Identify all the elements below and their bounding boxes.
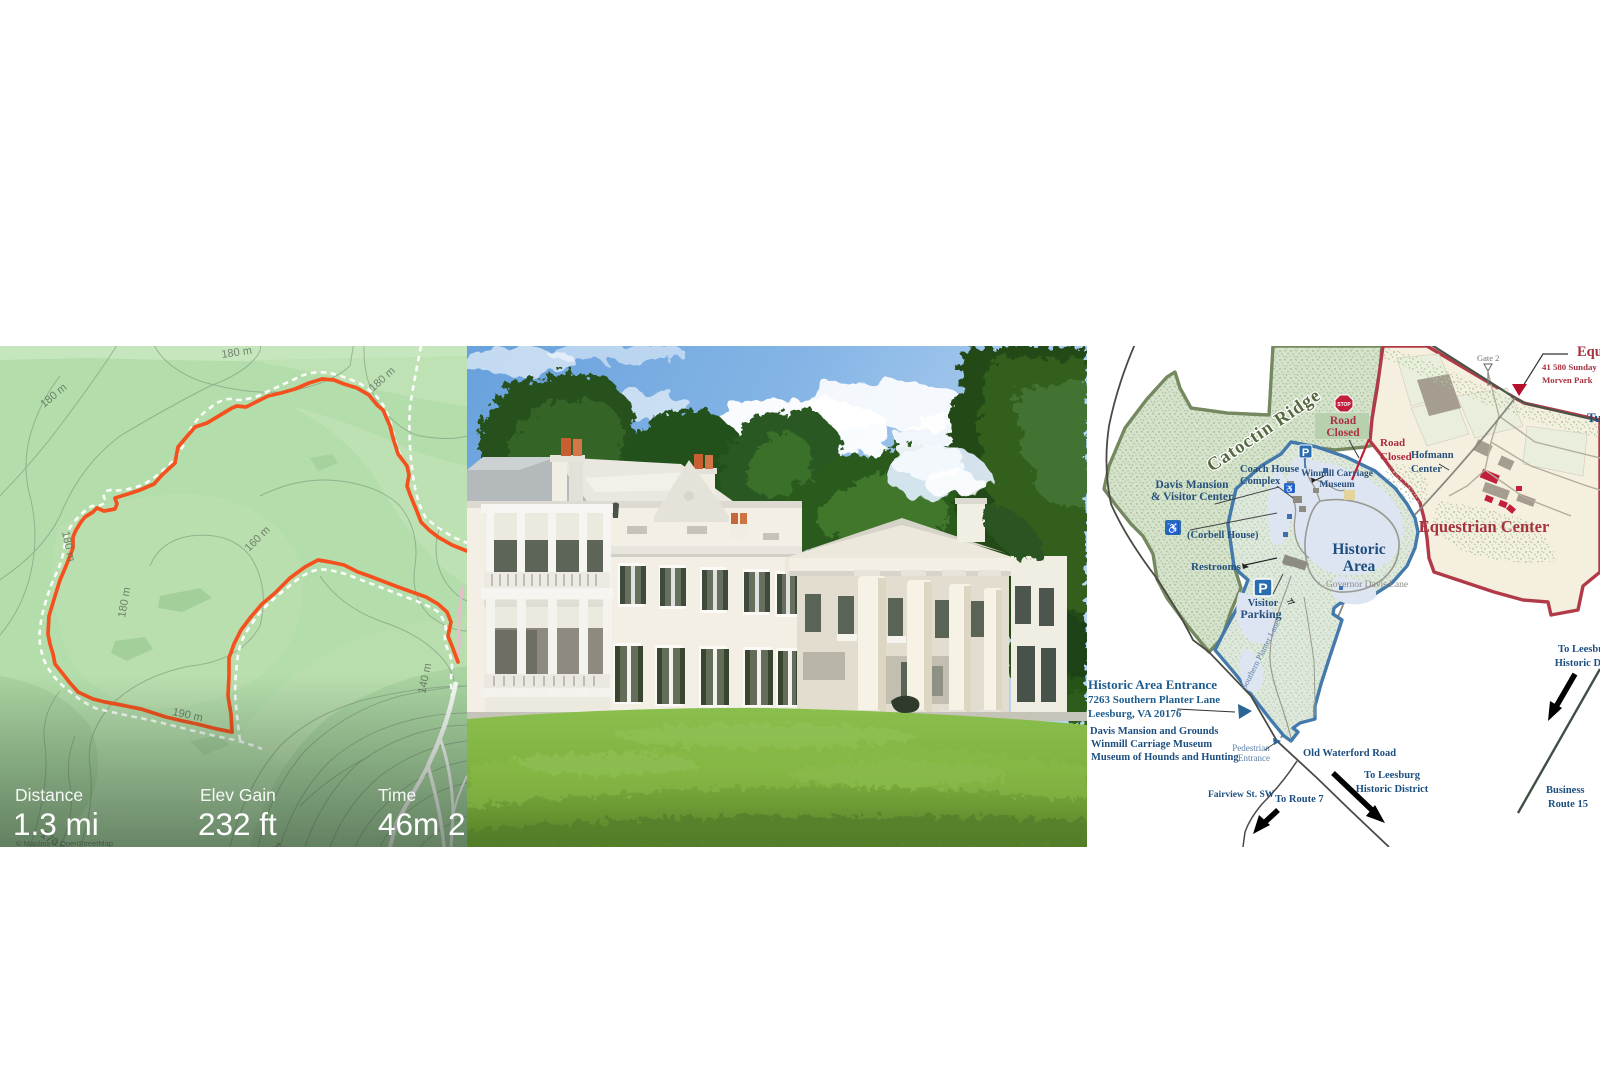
svg-text:Equ: Equ xyxy=(1577,346,1600,360)
svg-text:Governor Davis Lane: Governor Davis Lane xyxy=(1326,580,1408,590)
svg-text:Closed: Closed xyxy=(1326,427,1360,439)
svg-text:Museum: Museum xyxy=(1319,480,1354,490)
svg-text:Historic Area Entrance: Historic Area Entrance xyxy=(1088,677,1217,692)
svg-text:Gate 2: Gate 2 xyxy=(1477,353,1499,363)
svg-text:P: P xyxy=(1258,580,1267,596)
svg-text:Parking: Parking xyxy=(1240,607,1281,621)
svg-text:Hofmann: Hofmann xyxy=(1411,450,1454,461)
svg-text:(Corbell House): (Corbell House) xyxy=(1187,530,1259,541)
svg-text:To Route 7: To Route 7 xyxy=(1275,794,1324,805)
svg-text:Leesburg, VA 20176: Leesburg, VA 20176 xyxy=(1088,708,1182,720)
svg-text:Winmill Carriage Museum: Winmill Carriage Museum xyxy=(1091,739,1212,750)
svg-text:Winmill Carriage: Winmill Carriage xyxy=(1301,469,1373,479)
svg-text:Old Waterford Road: Old Waterford Road xyxy=(1303,748,1396,759)
svg-text:♿: ♿ xyxy=(1285,484,1295,494)
svg-text:Complex: Complex xyxy=(1240,476,1281,487)
svg-text:Historic: Historic xyxy=(1332,541,1385,558)
svg-text:Fairview St. SW: Fairview St. SW xyxy=(1208,790,1275,800)
svg-text:Tu: Tu xyxy=(1587,410,1600,425)
svg-text:Morven Park: Morven Park xyxy=(1542,375,1593,385)
svg-text:♿: ♿ xyxy=(1166,522,1180,535)
svg-text:46m 22: 46m 22 xyxy=(378,806,467,842)
svg-text:Distance: Distance xyxy=(15,785,83,805)
svg-text:Restrooms: Restrooms xyxy=(1191,561,1242,573)
svg-text:Business: Business xyxy=(1546,785,1585,796)
svg-text:To Leesburg: To Leesburg xyxy=(1558,644,1600,655)
svg-text:Historic District: Historic District xyxy=(1356,784,1429,795)
svg-text:STOP: STOP xyxy=(1337,402,1351,408)
svg-text:Center: Center xyxy=(1411,464,1442,475)
svg-text:Museum of Hounds and Hunting: Museum of Hounds and Hunting xyxy=(1091,752,1239,763)
svg-text:7263 Southern Planter Lane: 7263 Southern Planter Lane xyxy=(1088,694,1220,706)
svg-text:Closed: Closed xyxy=(1380,451,1412,463)
svg-text:Road: Road xyxy=(1380,437,1405,449)
svg-text:To Leesburg: To Leesburg xyxy=(1364,770,1421,781)
svg-text:Time: Time xyxy=(378,785,416,805)
svg-text:& Visitor Center: & Visitor Center xyxy=(1151,491,1233,503)
svg-text:Davis Mansion: Davis Mansion xyxy=(1155,479,1229,491)
svg-text:Road: Road xyxy=(1330,415,1357,427)
svg-text:232 ft: 232 ft xyxy=(198,806,277,842)
svg-text:1.3 mi: 1.3 mi xyxy=(13,806,99,842)
svg-text:P: P xyxy=(1302,447,1309,459)
svg-text:41 580 Sunday: 41 580 Sunday xyxy=(1542,362,1597,372)
svg-text:Elev Gain: Elev Gain xyxy=(200,785,276,805)
svg-text:Area: Area xyxy=(1343,558,1376,575)
svg-text:Davis Mansion and Grounds: Davis Mansion and Grounds xyxy=(1090,726,1218,737)
svg-text:Historic District: Historic District xyxy=(1555,658,1600,669)
svg-text:© Mapbox © OpenStreetMap: © Mapbox © OpenStreetMap xyxy=(16,839,113,847)
svg-text:Coach House: Coach House xyxy=(1240,464,1300,475)
svg-text:Equestrian Center: Equestrian Center xyxy=(1419,517,1550,536)
svg-text:Entrance: Entrance xyxy=(1238,753,1270,763)
svg-text:Route 15: Route 15 xyxy=(1548,799,1588,810)
svg-text:Pedestrian: Pedestrian xyxy=(1232,743,1270,753)
